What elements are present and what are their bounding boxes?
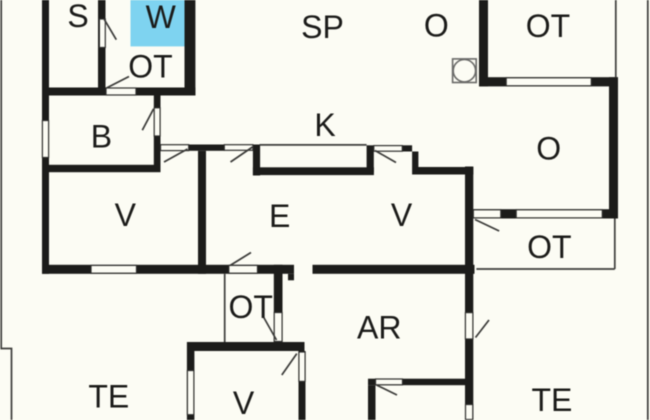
- svg-text:W: W: [146, 0, 177, 35]
- svg-text:SP: SP: [301, 9, 344, 45]
- svg-text:OT: OT: [228, 289, 272, 325]
- svg-text:V: V: [115, 197, 137, 233]
- svg-text:O: O: [424, 8, 449, 44]
- svg-text:S: S: [67, 0, 88, 34]
- svg-text:V: V: [233, 385, 255, 420]
- svg-text:TE: TE: [88, 378, 129, 414]
- svg-text:OT: OT: [526, 8, 570, 44]
- svg-text:B: B: [91, 119, 112, 155]
- svg-text:OT: OT: [527, 229, 571, 265]
- svg-text:E: E: [269, 198, 290, 234]
- svg-text:K: K: [314, 107, 335, 143]
- svg-text:V: V: [391, 197, 413, 233]
- svg-text:O: O: [536, 131, 561, 167]
- svg-text:TE: TE: [531, 382, 572, 418]
- svg-text:OT: OT: [128, 49, 172, 85]
- svg-text:AR: AR: [357, 310, 401, 346]
